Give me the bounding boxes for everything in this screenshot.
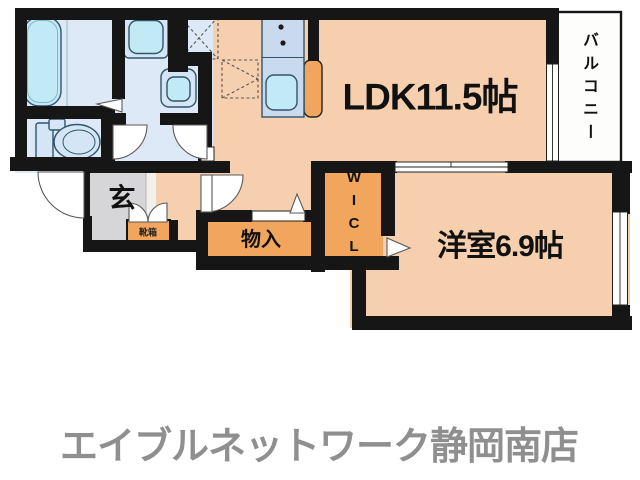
washbasin-bowl xyxy=(167,77,190,101)
footer-shop-name: エイブルネットワーク静岡南店 xyxy=(60,428,578,466)
stove-burner xyxy=(278,24,283,29)
shoe-cabinet-label: 靴箱 xyxy=(139,229,157,238)
hall-door-leaf xyxy=(201,175,212,212)
stove-burner xyxy=(280,40,285,45)
washing-machine xyxy=(129,21,163,54)
bathtub xyxy=(24,17,61,106)
counter-end-panel xyxy=(304,60,322,117)
ldk-room-label: LDK11.5帖 xyxy=(342,79,517,116)
entrance-door-leaf xyxy=(84,172,90,218)
floor-plan-page: LDK11.5帖 洋室6.9帖 バルコニー WICL 物入 玄 靴箱 エイブルネ… xyxy=(0,0,640,480)
wicl-label: WICL xyxy=(347,169,362,261)
entrance-label: 玄 xyxy=(109,186,136,213)
storage-label: 物入 xyxy=(241,230,281,250)
kitchen-sink xyxy=(266,75,297,110)
balcony-label: バルコニー xyxy=(580,32,596,147)
entrance-door-swing xyxy=(38,172,84,218)
bedroom-room-label: 洋室6.9帖 xyxy=(437,232,563,262)
